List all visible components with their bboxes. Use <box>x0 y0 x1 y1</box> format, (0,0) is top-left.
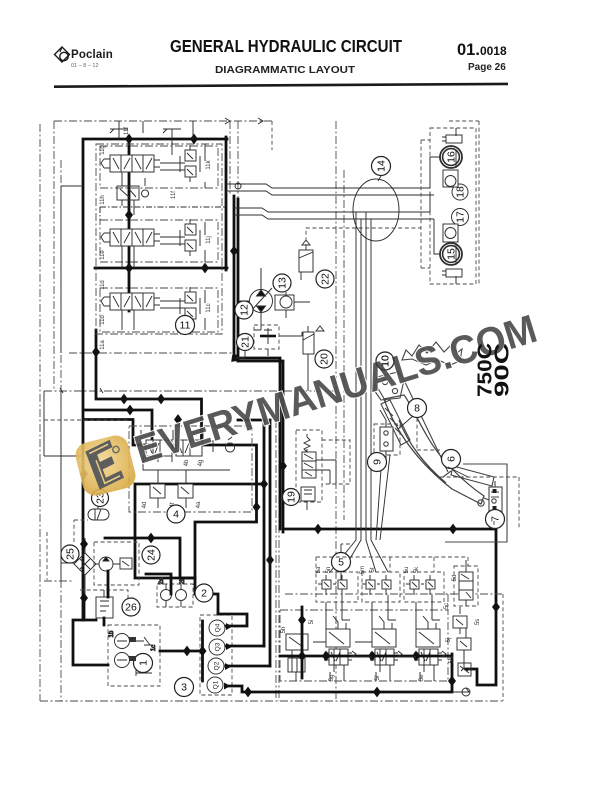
svg-text:11h: 11h <box>100 195 106 205</box>
svg-text:01 – 8 – 12: 01 – 8 – 12 <box>71 63 99 69</box>
svg-text:Q1: Q1 <box>213 680 220 689</box>
svg-text:5k: 5k <box>414 566 420 573</box>
svg-text:Q4: Q4 <box>215 623 222 632</box>
svg-text:13: 13 <box>277 277 289 289</box>
svg-text:5e: 5e <box>419 674 425 681</box>
svg-text:18: 18 <box>455 186 467 198</box>
svg-text:4a: 4a <box>196 501 202 508</box>
svg-text:1b: 1b <box>109 630 115 637</box>
svg-text:11k: 11k <box>206 159 212 169</box>
svg-text:Poclain: Poclain <box>71 49 113 61</box>
svg-text:2: 2 <box>201 588 207 600</box>
svg-text:15: 15 <box>446 248 458 260</box>
svg-text:5a: 5a <box>316 566 322 573</box>
svg-text:GENERAL HYDRAULIC CIRCUIT: GENERAL HYDRAULIC CIRCUIT <box>170 36 402 56</box>
svg-text:2a: 2a <box>159 577 165 584</box>
svg-text:11a: 11a <box>100 340 106 350</box>
svg-text:5h: 5h <box>281 627 287 634</box>
svg-text:5t: 5t <box>370 567 376 572</box>
svg-text:11b: 11b <box>100 315 106 325</box>
svg-text:6: 6 <box>446 456 458 462</box>
svg-text:21: 21 <box>240 336 252 348</box>
svg-text:5m: 5m <box>360 566 366 574</box>
svg-text:5f: 5f <box>375 675 381 680</box>
svg-text:1: 1 <box>138 660 150 666</box>
svg-text:19: 19 <box>286 491 298 503</box>
svg-text:10: 10 <box>380 355 392 367</box>
svg-text:11c: 11c <box>206 303 212 312</box>
svg-text:26: 26 <box>125 602 137 614</box>
svg-text:Q2: Q2 <box>214 661 221 670</box>
svg-text:5: 5 <box>338 557 344 569</box>
svg-text:5g: 5g <box>329 675 335 682</box>
svg-text:01.0018: 01.0018 <box>457 41 507 59</box>
svg-text:20: 20 <box>319 353 331 365</box>
svg-text:11d: 11d <box>100 280 106 290</box>
svg-text:11: 11 <box>180 320 191 332</box>
svg-text:3: 3 <box>181 682 187 694</box>
svg-text:Page 26: Page 26 <box>468 62 506 73</box>
svg-text:9: 9 <box>372 459 384 465</box>
svg-text:22: 22 <box>320 273 332 285</box>
svg-text:11f: 11f <box>124 127 130 135</box>
svg-text:14: 14 <box>376 160 388 172</box>
svg-text:Q3: Q3 <box>215 642 222 651</box>
svg-text:5c: 5c <box>444 603 450 609</box>
svg-text:24: 24 <box>146 549 158 561</box>
svg-text:8: 8 <box>414 403 420 415</box>
svg-text:5s: 5s <box>475 619 481 625</box>
svg-text:11e: 11e <box>100 250 106 260</box>
svg-text:1c: 1c <box>151 645 157 651</box>
svg-text:5j: 5j <box>446 638 452 643</box>
svg-text:11g: 11g <box>100 145 106 155</box>
svg-text:4: 4 <box>173 509 179 521</box>
svg-text:11j: 11j <box>206 236 212 244</box>
svg-text:4d: 4d <box>142 502 148 509</box>
svg-text:5u: 5u <box>404 567 410 574</box>
svg-text:DIAGRAMMATIC LAYOUT: DIAGRAMMATIC LAYOUT <box>215 65 355 76</box>
svg-text:25: 25 <box>65 548 77 560</box>
svg-text:17: 17 <box>455 211 467 223</box>
svg-text:5d: 5d <box>452 575 458 582</box>
svg-text:12: 12 <box>239 304 251 316</box>
svg-text:5n: 5n <box>326 567 332 574</box>
svg-text:4b: 4b <box>184 459 190 466</box>
svg-text:11f: 11f <box>171 191 177 199</box>
svg-text:90C: 90C <box>491 343 514 397</box>
svg-text:5b: 5b <box>449 656 455 663</box>
svg-text:4g: 4g <box>198 460 204 467</box>
svg-text:16: 16 <box>446 151 458 163</box>
svg-text:5i: 5i <box>309 620 315 625</box>
svg-text:7: 7 <box>490 516 502 522</box>
